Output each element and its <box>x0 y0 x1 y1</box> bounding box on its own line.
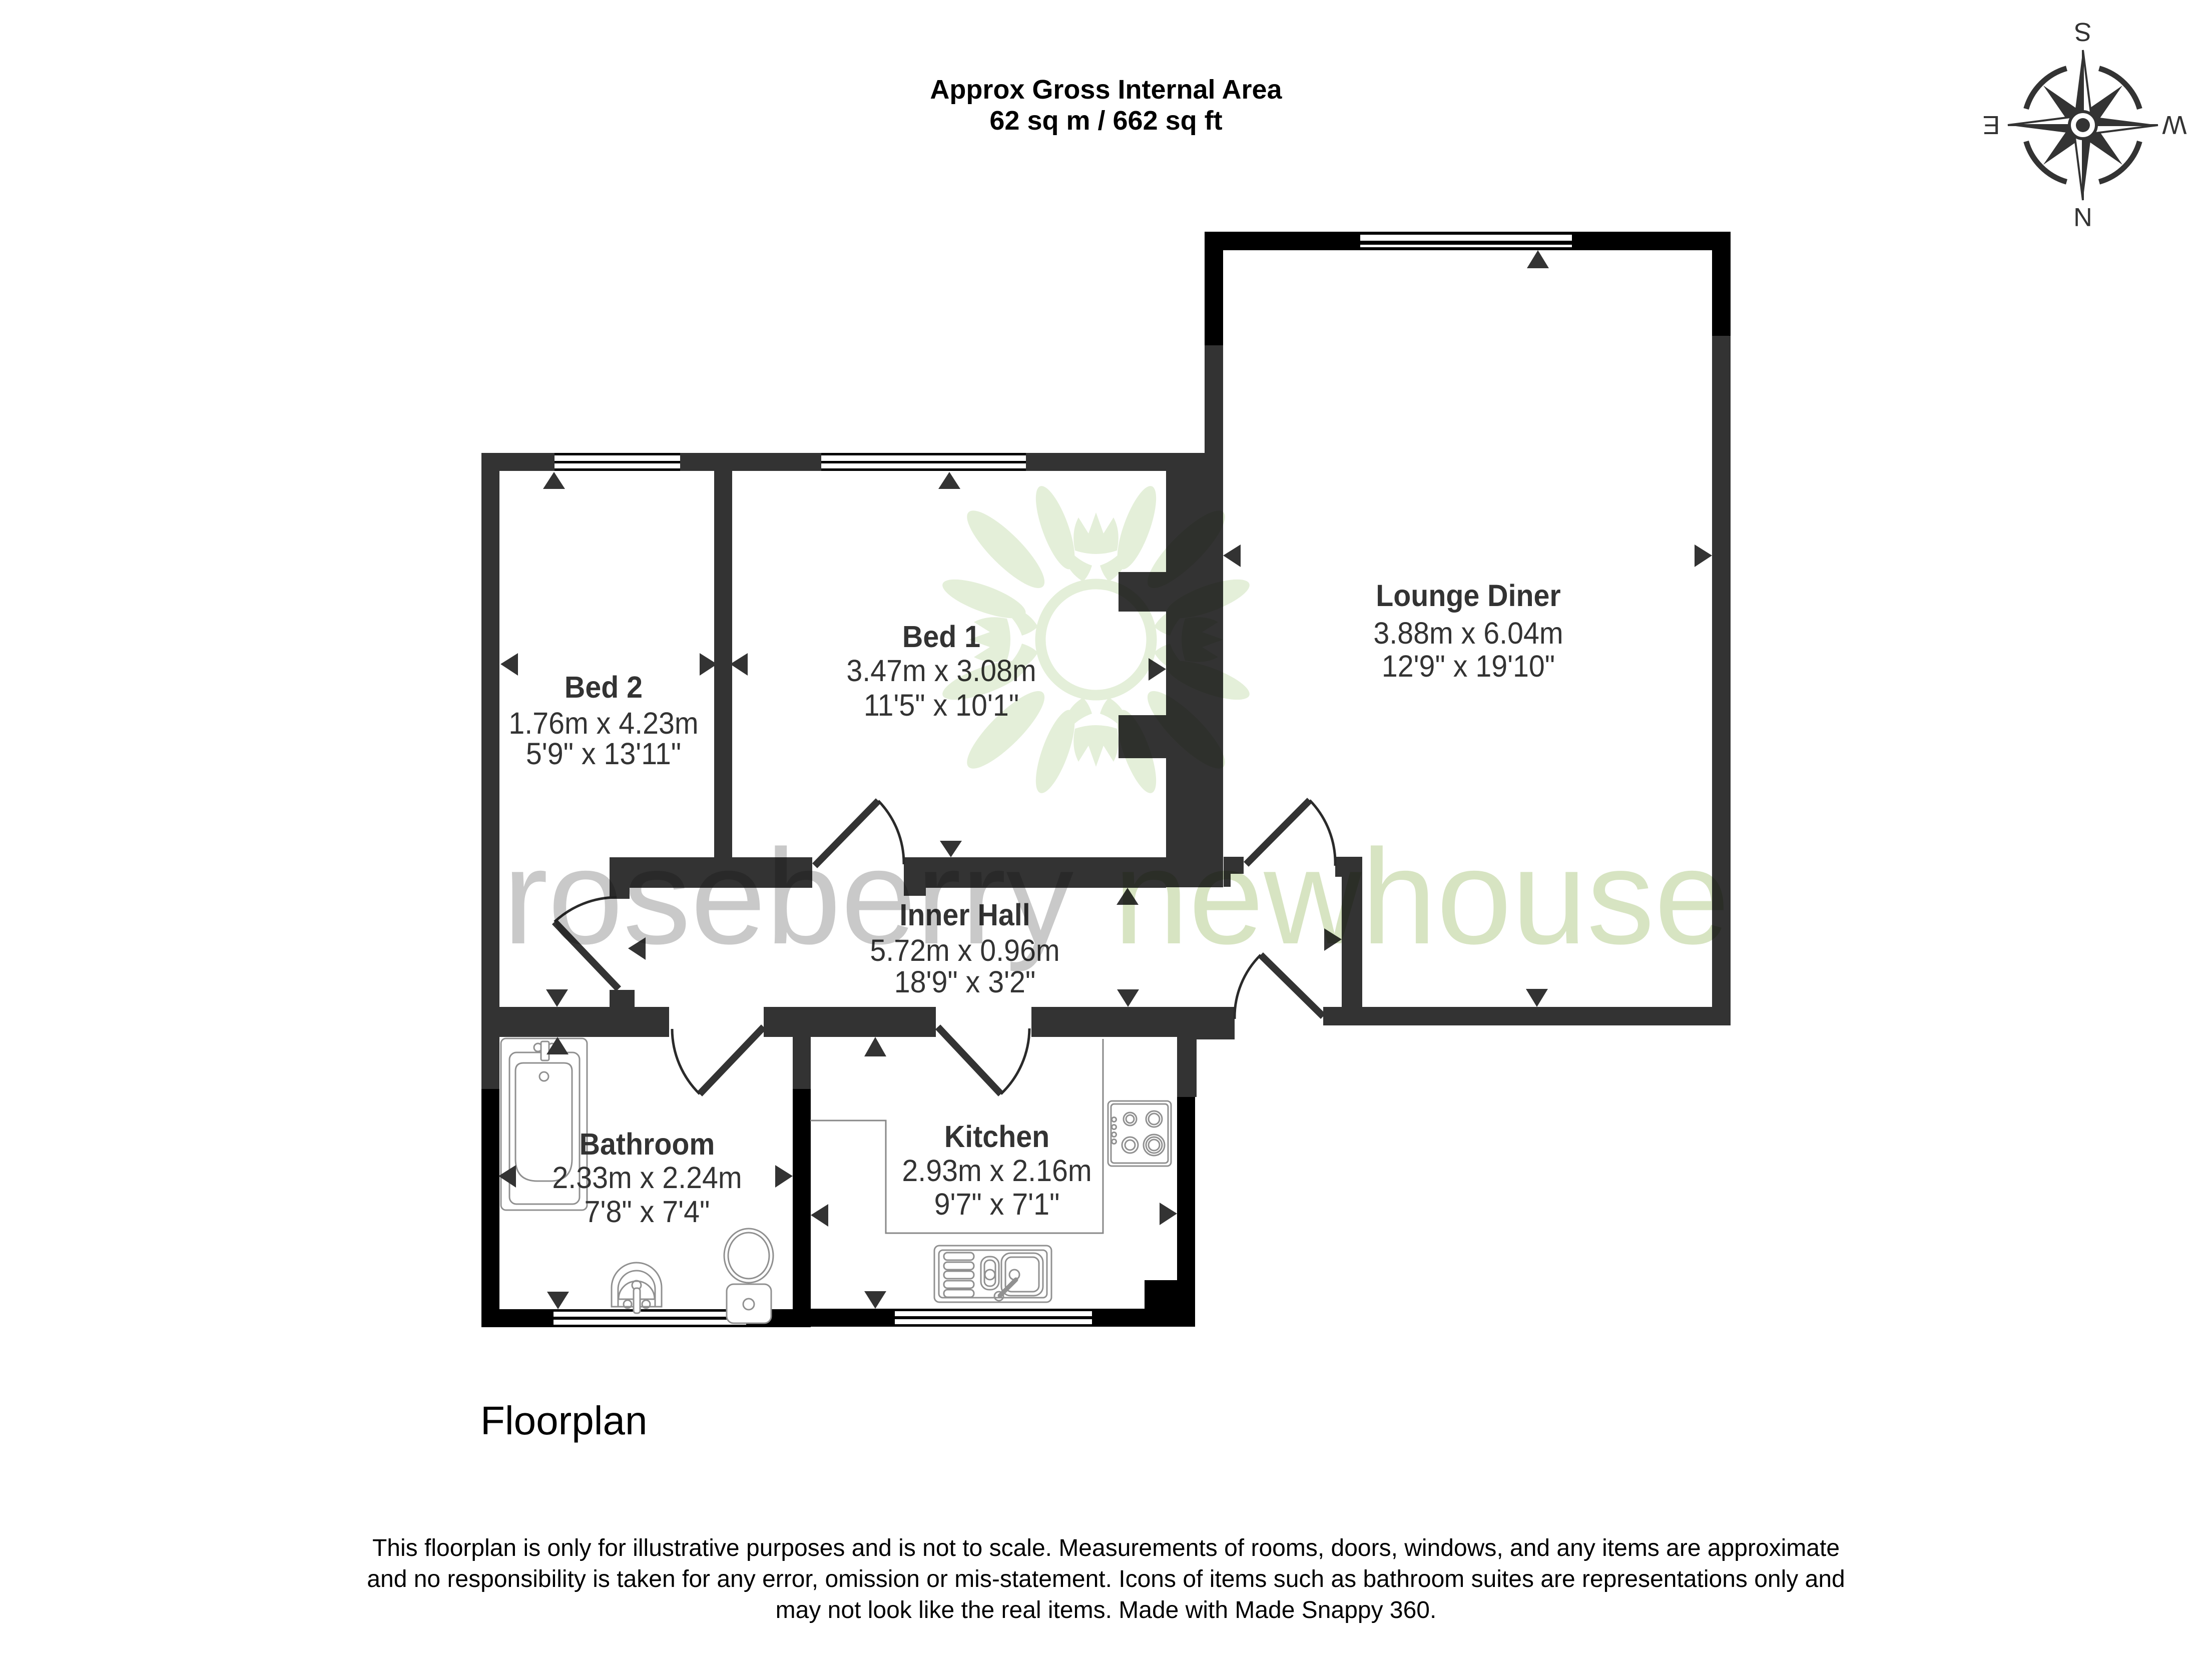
svg-text:newhouse: newhouse <box>1114 822 1730 972</box>
svg-text:roseberry: roseberry <box>503 822 1073 973</box>
